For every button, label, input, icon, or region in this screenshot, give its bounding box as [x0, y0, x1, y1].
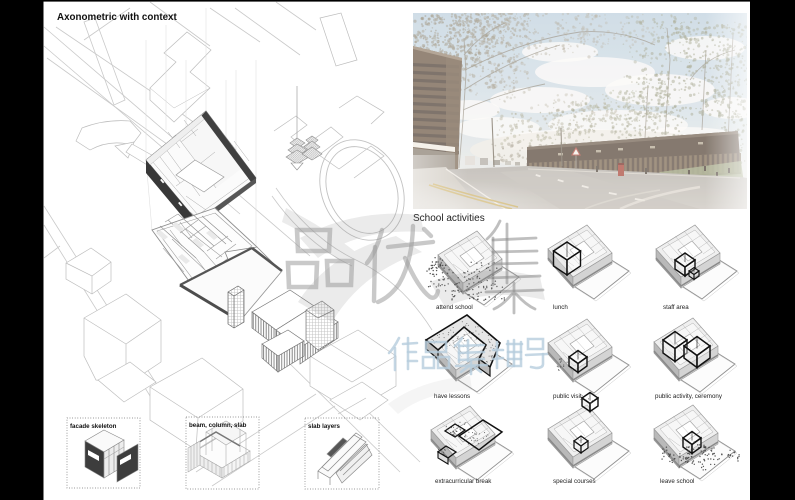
svg-text:School activities: School activities: [413, 213, 485, 224]
svg-text:lunch: lunch: [553, 304, 568, 311]
svg-text:leave school: leave school: [660, 478, 694, 485]
svg-text:slab layers: slab layers: [308, 423, 341, 430]
svg-text:extracurricular break: extracurricular break: [435, 478, 492, 485]
svg-text:special courses: special courses: [553, 478, 596, 485]
svg-text:public visit: public visit: [553, 393, 582, 400]
svg-text:public activity, ceremony: public activity, ceremony: [655, 393, 723, 400]
svg-text:beam, column, slab: beam, column, slab: [189, 422, 247, 429]
svg-text:facade skeleton: facade skeleton: [70, 423, 117, 430]
svg-text:attend school: attend school: [436, 304, 473, 311]
svg-text:Axonometric with context: Axonometric with context: [57, 12, 177, 23]
svg-text:staff area: staff area: [663, 304, 689, 311]
